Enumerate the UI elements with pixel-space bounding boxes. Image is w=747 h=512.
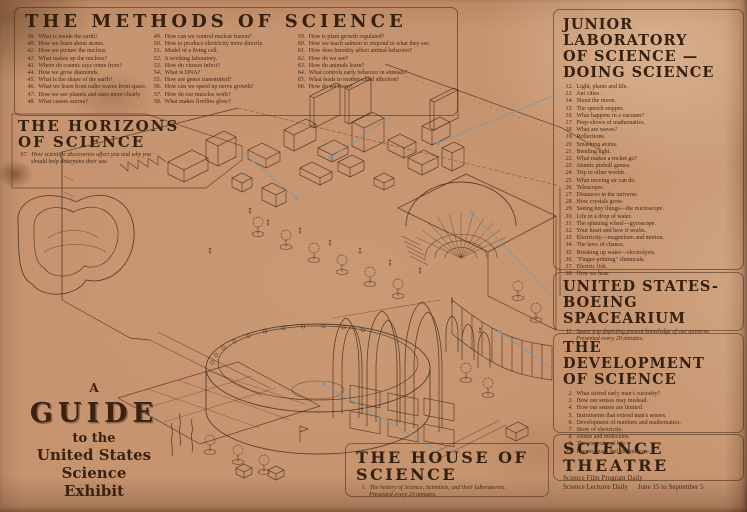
list-item: 32. Your heart and how it works.	[563, 228, 737, 235]
guide-line-exhibit: Exhibit	[10, 482, 178, 500]
list-item: 31. The spinning wheel—gyroscope.	[563, 221, 737, 228]
list-item: 51. Model of a living cell.	[151, 48, 295, 55]
junior-title-line3: DOING SCIENCE	[563, 65, 737, 81]
list-item: 67. How scientific discoveries affect yo…	[18, 152, 158, 166]
list-item: 46. What we learn from radio waves from …	[25, 84, 151, 91]
list-item: 53. How do viruses infect?	[151, 63, 295, 70]
list-item: 66. How do we learn?	[295, 84, 449, 91]
list-item: 30. Life in a drop of water.	[563, 214, 737, 221]
list-item: 20. Smashing atoms.	[563, 142, 737, 149]
horizons-list: 67. How scientific discoveries affect yo…	[18, 152, 158, 166]
section-house: THE HOUSE OF SCIENCE 1. The history of S…	[345, 443, 549, 497]
theatre-title: SCIENCE THEATRE	[563, 440, 737, 474]
list-item: 63. How do animals learn?	[295, 63, 449, 70]
list-item: 26. Telescopes.	[563, 185, 737, 192]
section-spacearium: UNITED STATES- BOEING SPACEARIUM 11. Spa…	[553, 272, 744, 331]
list-item: 59. How is plant growth regulated?	[295, 34, 449, 41]
house-title: THE HOUSE OF SCIENCE	[356, 449, 542, 483]
methods-column-2: 49. How can we control nuclear fusion?50…	[151, 34, 295, 106]
list-item: 6. Development of numbers and mathematic…	[563, 420, 737, 427]
guide-line-usscience: United States Science	[10, 446, 178, 482]
list-item: 16. What happens in a vacuum?	[563, 113, 737, 120]
list-item: 27. Distances in the universe.	[563, 192, 737, 199]
junior-title-line1: JUNIOR LABORATORY	[563, 17, 737, 49]
theatre-lectures-line: Science Lectures Daily	[563, 483, 628, 492]
section-theatre: SCIENCE THEATRE Science Film Program Dai…	[553, 434, 744, 481]
spacearium-title-line2: BOEING SPACEARIUM	[563, 295, 737, 327]
list-item: 47. How we see planets and stars more cl…	[25, 92, 151, 99]
guide-title-block: A GUIDE to the United States Science Exh…	[10, 381, 178, 500]
development-title-line2: OF SCIENCE	[563, 372, 737, 388]
section-methods: THE METHODS OF SCIENCE 39. What is insid…	[14, 7, 458, 116]
list-item: 17. Peep-shows of mathematics.	[563, 120, 737, 127]
list-item: 24. Trip to other worlds.	[563, 170, 737, 177]
list-item: 49. How can we control nuclear fusion?	[151, 34, 295, 41]
list-item: 62. How do we see?	[295, 56, 449, 63]
list-item: 34. The laws of chance.	[563, 242, 737, 249]
guide-line-tothe: to the	[10, 431, 178, 446]
list-item: 35. Breaking up water—electrolysis.	[563, 250, 737, 257]
theatre-film-line: Science Film Program Daily	[563, 474, 737, 483]
guide-line-a: A	[10, 381, 178, 395]
list-item: 55. How are genes transmitted?	[151, 77, 295, 84]
junior-title-line2: OF SCIENCE —	[563, 49, 737, 65]
list-item: 37. Electric fish.	[563, 264, 737, 271]
section-junior-laboratory: JUNIOR LABORATORY OF SCIENCE — DOING SCI…	[553, 9, 744, 270]
methods-title: THE METHODS OF SCIENCE	[25, 12, 449, 31]
horizons-title-line1: THE HORIZONS	[18, 118, 243, 134]
list-item: 4. How our senses are limited.	[563, 405, 737, 412]
horizons-title-line2: OF SCIENCE	[18, 134, 243, 150]
list-item: 5. Instruments that extend man's senses.	[563, 413, 737, 420]
list-item: 41. How we picture the nucleus.	[25, 48, 151, 55]
list-item: 29. Seeing tiny things—the microscope.	[563, 206, 737, 213]
list-item: 42. What makes up the nucleus?	[25, 56, 151, 63]
list-item: 61. How does heredity affect animal beha…	[295, 48, 449, 55]
list-item: 22. What makes a rocket go?	[563, 156, 737, 163]
list-item: 36. "Finger-printing" chemicals.	[563, 257, 737, 264]
list-item: 12. Light, plants and life.	[563, 84, 737, 91]
junior-list: 12. Light, plants and life.13. Ant citie…	[563, 84, 737, 278]
house-list: 1. The history of Science, Scientists, a…	[356, 485, 521, 499]
methods-column-1: 39. What is inside the earth?40. How we …	[25, 34, 151, 106]
theatre-dates: June 15 to September 5	[638, 483, 704, 492]
list-item: 48. What causes aurora?	[25, 99, 151, 106]
list-item: 54. What is DNA?	[151, 70, 295, 77]
list-item: 57. How do our muscles work?	[151, 92, 295, 99]
list-item: 58. What makes fireflies glow?	[151, 99, 295, 106]
list-item: 65. What leads to mother-child affection…	[295, 77, 449, 84]
list-item: 28. How crystals grow.	[563, 199, 737, 206]
methods-column-3: 59. How is plant growth regulated?60. Ho…	[295, 34, 449, 106]
list-item: 56. How can we speed up nerve growth?	[151, 84, 295, 91]
list-item: 15. The speech stopper.	[563, 106, 737, 113]
list-item: 52. A working laboratory.	[151, 56, 295, 63]
development-title-line1: THE DEVELOPMENT	[563, 340, 737, 372]
list-item: 43. Where do cosmic rays come from?	[25, 63, 151, 70]
spacearium-title-line1: UNITED STATES-	[563, 279, 737, 295]
list-item: 25. What moving air can do.	[563, 178, 737, 185]
list-item: 14. Shoot the moon.	[563, 98, 737, 105]
list-item: 21. Bending light.	[563, 149, 737, 156]
list-item: 1. The history of Science, Scientists, a…	[356, 485, 521, 499]
guide-page: THE METHODS OF SCIENCE 39. What is insid…	[0, 0, 747, 512]
list-item: 19. Reflections.	[563, 134, 737, 141]
guide-line-guide: GUIDE	[10, 398, 178, 429]
list-item: 2. What stirred early man's curiosity?	[563, 391, 737, 398]
section-horizons: THE HORIZONS OF SCIENCE 67. How scientif…	[18, 118, 243, 188]
section-development: THE DEVELOPMENT OF SCIENCE 2. What stirr…	[553, 333, 744, 433]
